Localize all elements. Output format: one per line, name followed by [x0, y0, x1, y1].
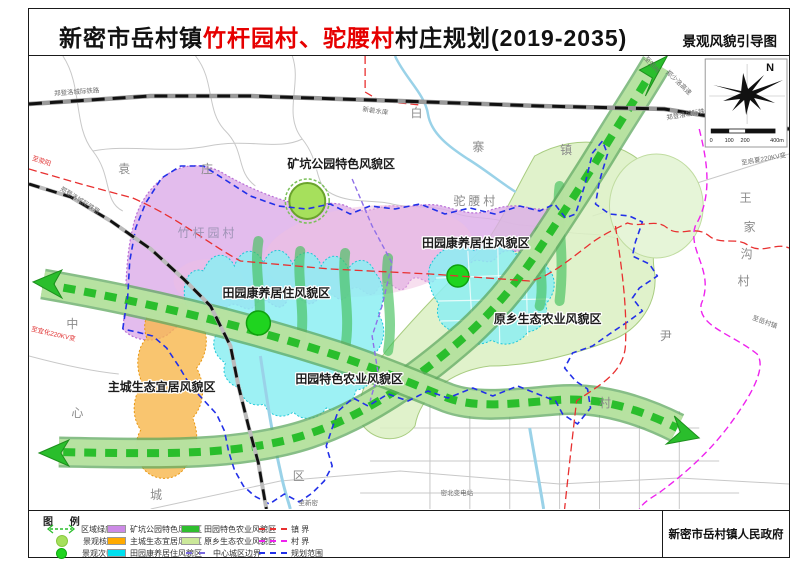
legend-label: 村 界 [291, 536, 309, 547]
label-xin: 心 [71, 406, 86, 420]
legend-item-corridor: 区域绿廊 [45, 524, 113, 534]
planning-map-sheet: 新密市岳村镇竹杆园村、驼腰村村庄规划(2019-2035) 景观风貌引导图 [0, 0, 800, 565]
label-zhengshaoluo-expressway: 郑少洛高速 [664, 68, 694, 97]
page-title: 新密市岳村镇竹杆园村、驼腰村村庄规划(2019-2035) [59, 19, 627, 53]
legend-item-planning-scope: 规划范围 [259, 548, 323, 558]
label-jia: 家 [744, 219, 759, 234]
orange-swatch [107, 537, 126, 545]
title-villages: 竹杆园村、驼腰村 [203, 25, 395, 51]
scale-tick-400: 400m [770, 138, 784, 144]
landscape-core-node [285, 179, 329, 223]
publisher-box: 新密市岳村镇人民政府 [662, 511, 789, 557]
bottom-bar: 图 例 区域绿廊 景观核心 景观次中心 [29, 510, 789, 557]
blue-dash-icon [259, 552, 287, 554]
label-zhuganyuan-village: 竹杆园村 [178, 226, 238, 240]
label-reservoir: 新砦水库 [362, 104, 389, 117]
legend-label: 中心城区边界 [213, 548, 261, 559]
scale-tick-100: 100 [725, 138, 734, 144]
title-band: 新密市岳村镇竹杆园村、驼腰村村庄规划(2019-2035) 景观风貌引导图 [29, 9, 789, 56]
green-dashed-arrow-icon [45, 524, 77, 534]
purple-swatch [107, 525, 126, 533]
publisher-name: 新密市岳村镇人民政府 [669, 526, 784, 542]
label-kangyang-left: 田园康养居住风貌区 [223, 285, 331, 300]
label-zhai: 寨 [472, 139, 487, 154]
label-qu: 区 [293, 469, 308, 483]
legend-item-core: 景观核心 [45, 536, 115, 546]
label-to-xingyang: 至荥阳 [31, 153, 52, 168]
label-gou: 沟 [741, 247, 756, 261]
legend-item-central-city-boundary: 中心城区边界 [181, 548, 261, 558]
label-to-qixia-substation: 至启夏220KV变 [741, 150, 788, 167]
label-yuanxiang-agri: 原乡生态农业风貌区 [494, 311, 602, 326]
red-dash-icon [259, 528, 287, 530]
label-wang: 王 [740, 191, 755, 205]
label-cheng: 城 [150, 488, 165, 502]
legend-label: 规划范围 [291, 548, 323, 559]
label-tuoyao-village: 驼腰村 [453, 193, 498, 208]
scale-tick-200: 200 [741, 138, 750, 144]
label-yuan: 袁 [118, 162, 133, 176]
map-frame: 新密市岳村镇竹杆园村、驼腰村村庄规划(2019-2035) 景观风貌引导图 [28, 8, 790, 558]
label-zhucheng-eco: 主城生态宜居风貌区 [108, 379, 216, 394]
label-mine-park: 矿坑公园特色风貌区 [287, 156, 395, 171]
green-circle-icon [56, 548, 67, 559]
title-prefix: 新密市岳村镇 [59, 25, 203, 51]
label-cun1: 村 [738, 274, 753, 288]
label-cun2: 村 [599, 396, 614, 410]
label-mibei-substation: 密北变电站 [441, 488, 474, 497]
legend-item-village-boundary: 村 界 [259, 536, 309, 546]
label-rail1: 郑登洛城际铁路 [54, 85, 100, 97]
label-kangyang-right: 田园康养居住风貌区 [422, 235, 530, 250]
compass-box: N 0 100 200 400m [705, 59, 787, 147]
light-green-circle-icon [56, 535, 68, 547]
label-tianyuan-agri: 田园特色农业风貌区 [295, 371, 403, 386]
label-zhuang: 庄 [201, 161, 216, 176]
magenta-dash-icon [259, 540, 287, 542]
legend-label: 镇 界 [291, 524, 309, 535]
title-suffix: 村庄规划(2019-2035) [395, 25, 627, 51]
label-zhen: 镇 [560, 143, 575, 157]
legend: 图 例 区域绿廊 景观核心 景观次中心 [29, 511, 662, 557]
scale-tick-0: 0 [710, 138, 713, 144]
map-type-label: 景观风貌引导图 [683, 30, 778, 50]
label-zhong: 中 [66, 316, 81, 331]
label-bai: 白 [411, 105, 426, 120]
cyan-swatch [107, 549, 126, 557]
green-swatch [181, 525, 200, 533]
label-rail2: 郑登洛城际铁路 [59, 184, 103, 216]
light-green-swatch [181, 537, 200, 545]
label-yin: 尹 [660, 329, 675, 343]
map-area: 矿坑公园特色风貌区 田园康养居住风貌区 田园康养居住风貌区 原乡生态农业风貌区 … [29, 56, 789, 509]
legend-item-town-boundary: 镇 界 [259, 524, 309, 534]
label-to-xinmi: 至新密 [299, 498, 319, 507]
north-label: N [766, 62, 774, 74]
label-to-yuecunzhen: 至岳村镇 [751, 313, 779, 331]
purple-dash-icon [186, 552, 205, 554]
map-svg: 矿坑公园特色风貌区 田园康养居住风貌区 田园康养居住风貌区 原乡生态农业风貌区 … [29, 56, 789, 509]
